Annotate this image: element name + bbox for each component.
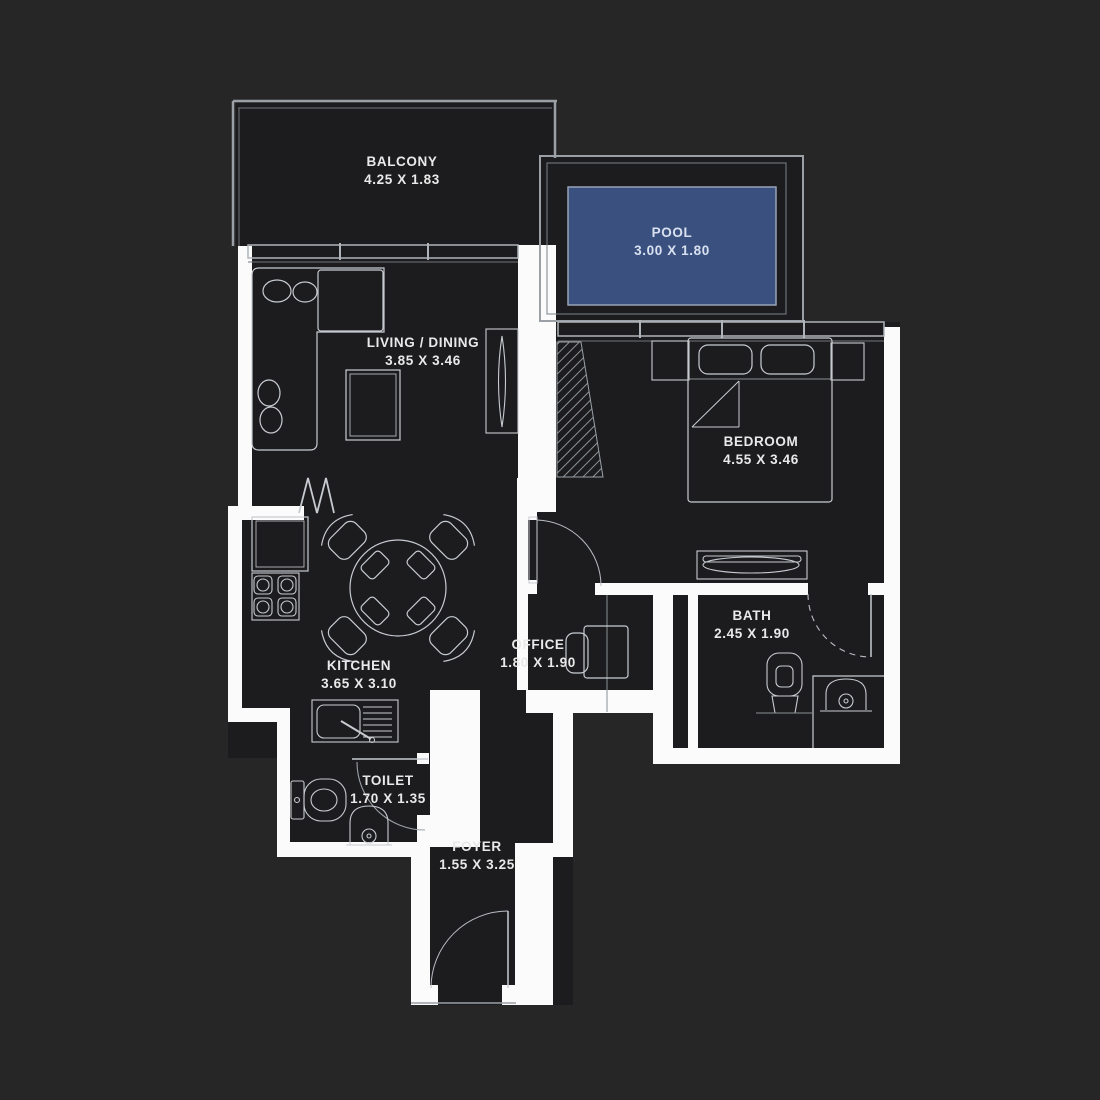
floor-plan-svg (0, 0, 1100, 1100)
balcony-floor (236, 103, 555, 246)
bedroom-floor (556, 322, 900, 595)
pool (568, 187, 776, 305)
floor-plan: BALCONY 4.25 X 1.83 POOL 3.00 X 1.80 LIV… (0, 0, 1100, 1100)
floor-areas (228, 103, 900, 1005)
